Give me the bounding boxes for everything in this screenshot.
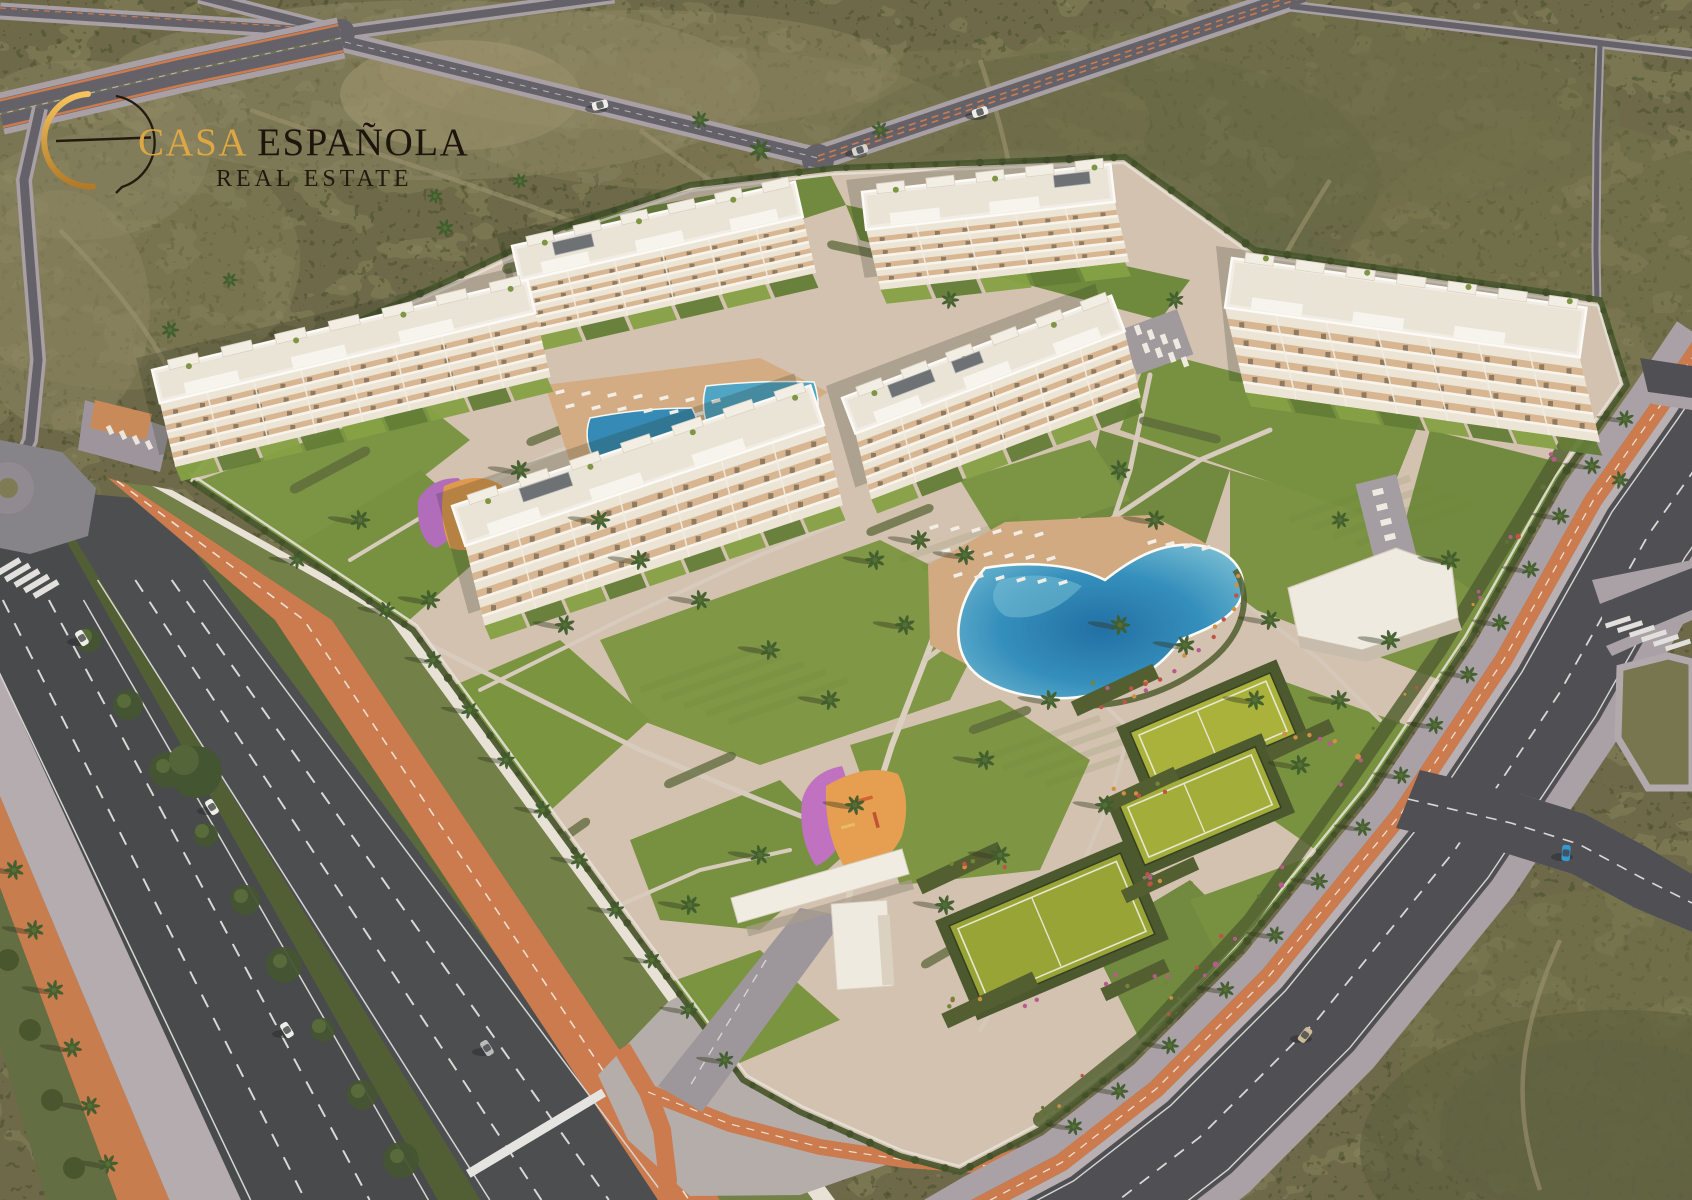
svg-text:REAL ESTATE: REAL ESTATE <box>216 166 413 192</box>
svg-text:CASA ESPAÑOLA: CASA ESPAÑOLA <box>138 121 469 164</box>
